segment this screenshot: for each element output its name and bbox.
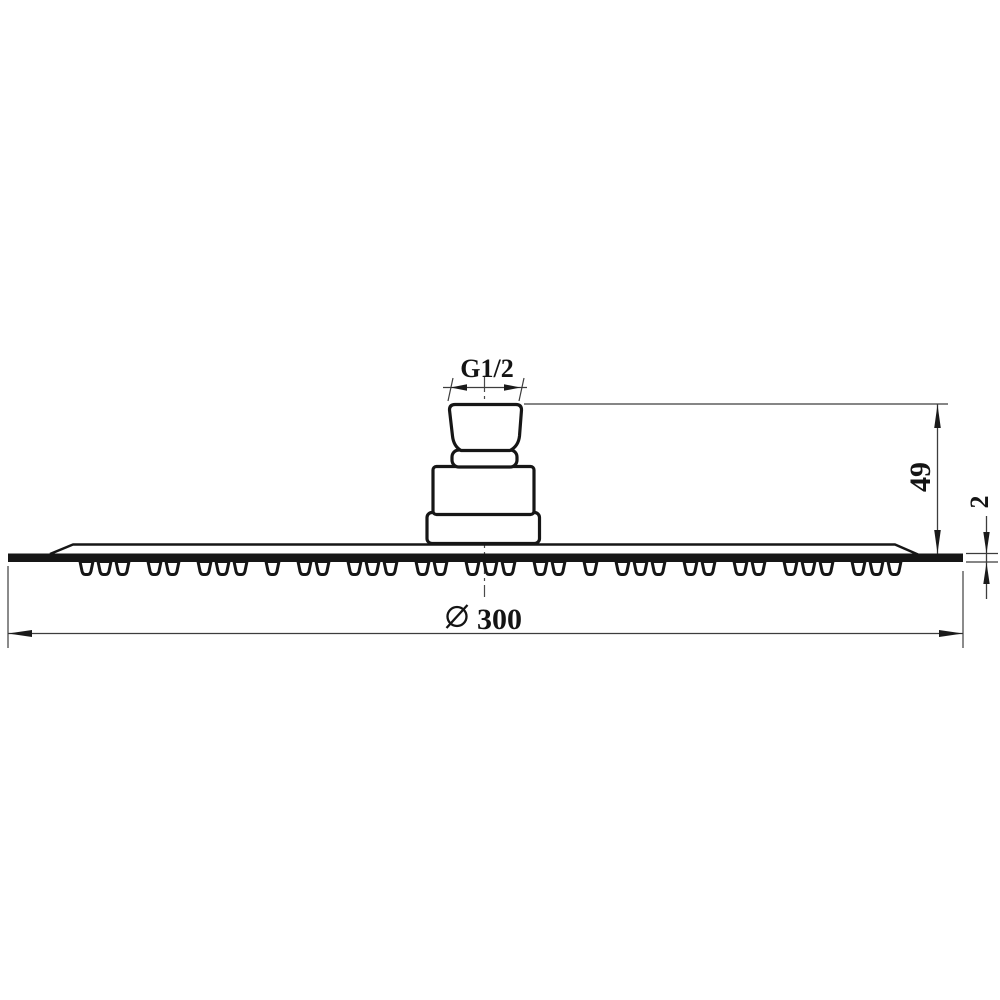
dimension-diameter: 300 [8, 566, 963, 648]
nozzle-tooth [434, 562, 447, 575]
nozzle-tooth [166, 562, 179, 575]
nozzle-tooth [552, 562, 565, 575]
nozzle-tooth [316, 562, 329, 575]
thread-connector-profile [427, 405, 540, 544]
dimension-thread: G1/2 [443, 354, 527, 401]
nozzle-tooth [752, 562, 765, 575]
nozzle-tooth [652, 562, 665, 575]
diameter-symbol-icon [447, 605, 468, 628]
nozzle-tooth [416, 562, 429, 575]
nozzle-tooth [820, 562, 833, 575]
dimension-height: 49 [524, 404, 948, 554]
arrow-left-icon [8, 630, 32, 637]
thread-nut [450, 405, 522, 451]
nozzle-tooth [634, 562, 647, 575]
nozzle-tooth [116, 562, 129, 575]
nozzle-tooth [702, 562, 715, 575]
technical-drawing-canvas: G1/2 49 2 300 [0, 0, 1000, 1000]
connector-body [433, 467, 534, 515]
nozzle-tooth [616, 562, 629, 575]
height-value-label: 49 [904, 462, 937, 492]
nozzle-tooth [384, 562, 397, 575]
dimension-edge-thickness: 2 [965, 496, 998, 600]
nozzle-tooth [484, 562, 497, 575]
arrow-up-icon [983, 563, 989, 585]
shower-head-drawing: G1/2 49 2 300 [0, 0, 1000, 1000]
nozzle-tooth [366, 562, 379, 575]
thread-extension-line-left [448, 378, 453, 401]
arrow-down-icon [983, 532, 989, 554]
thickness-value-label: 2 [965, 496, 994, 509]
nozzle-tooth [266, 562, 279, 575]
nozzle-tooth [870, 562, 883, 575]
arrow-right-icon [504, 384, 521, 391]
thread-extension-line-right [519, 378, 524, 401]
shower-plate-profile [8, 545, 963, 575]
nozzle-tooth [784, 562, 797, 575]
thread-size-label: G1/2 [460, 354, 513, 383]
nozzle-row [80, 562, 901, 575]
nozzle-tooth [888, 562, 901, 575]
nozzle-tooth [734, 562, 747, 575]
nozzle-tooth [466, 562, 479, 575]
nozzle-tooth [348, 562, 361, 575]
nozzle-tooth [502, 562, 515, 575]
nozzle-tooth [234, 562, 247, 575]
nozzle-tooth [216, 562, 229, 575]
nozzle-tooth [802, 562, 815, 575]
nozzle-tooth [584, 562, 597, 575]
nozzle-tooth [684, 562, 697, 575]
nozzle-tooth [148, 562, 161, 575]
connector-collar [452, 450, 517, 467]
connector-base-flange [427, 513, 540, 544]
nozzle-tooth [298, 562, 311, 575]
nozzle-tooth [852, 562, 865, 575]
nozzle-tooth [98, 562, 111, 575]
nozzle-tooth [534, 562, 547, 575]
arrow-down-icon [934, 530, 941, 554]
diameter-value-label: 300 [477, 603, 522, 636]
arrow-right-icon [939, 630, 963, 637]
nozzle-tooth [80, 562, 93, 575]
arrow-left-icon [451, 384, 468, 391]
nozzle-tooth [198, 562, 211, 575]
arrow-up-icon [934, 405, 941, 429]
